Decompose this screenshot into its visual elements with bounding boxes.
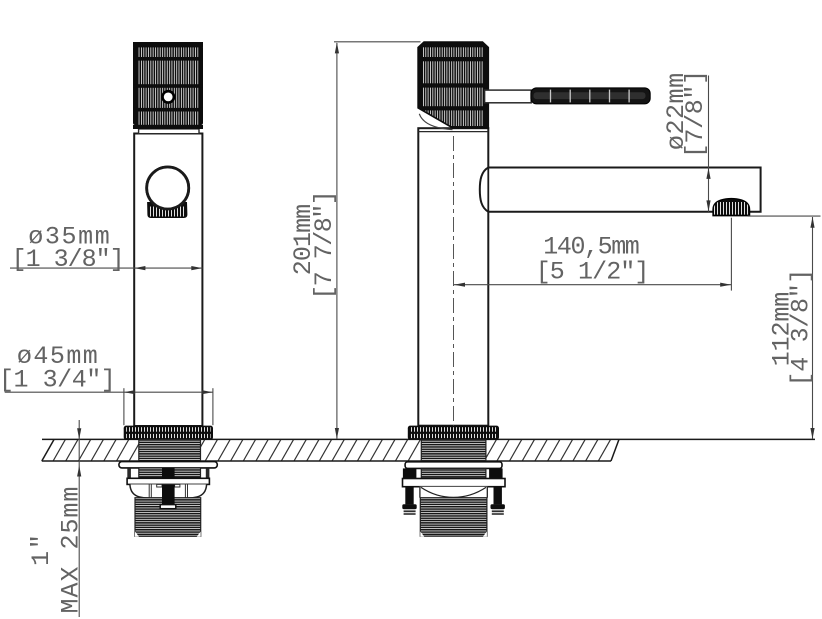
svg-text:[7/8″]: [7/8″] [681, 70, 710, 158]
svg-text:[5 1/2″]: [5 1/2″] [536, 258, 650, 287]
svg-text:[7 7/8″]: [7 7/8″] [310, 190, 339, 300]
svg-text:[1 3/8″]: [1 3/8″] [12, 245, 125, 274]
svg-text:[4 3/8″]: [4 3/8″] [786, 269, 815, 387]
svg-text:1″: 1″ [27, 534, 56, 566]
svg-text:[1 3/4″]: [1 3/4″] [0, 366, 116, 395]
svg-text:MAX 25mm: MAX 25mm [56, 487, 85, 614]
